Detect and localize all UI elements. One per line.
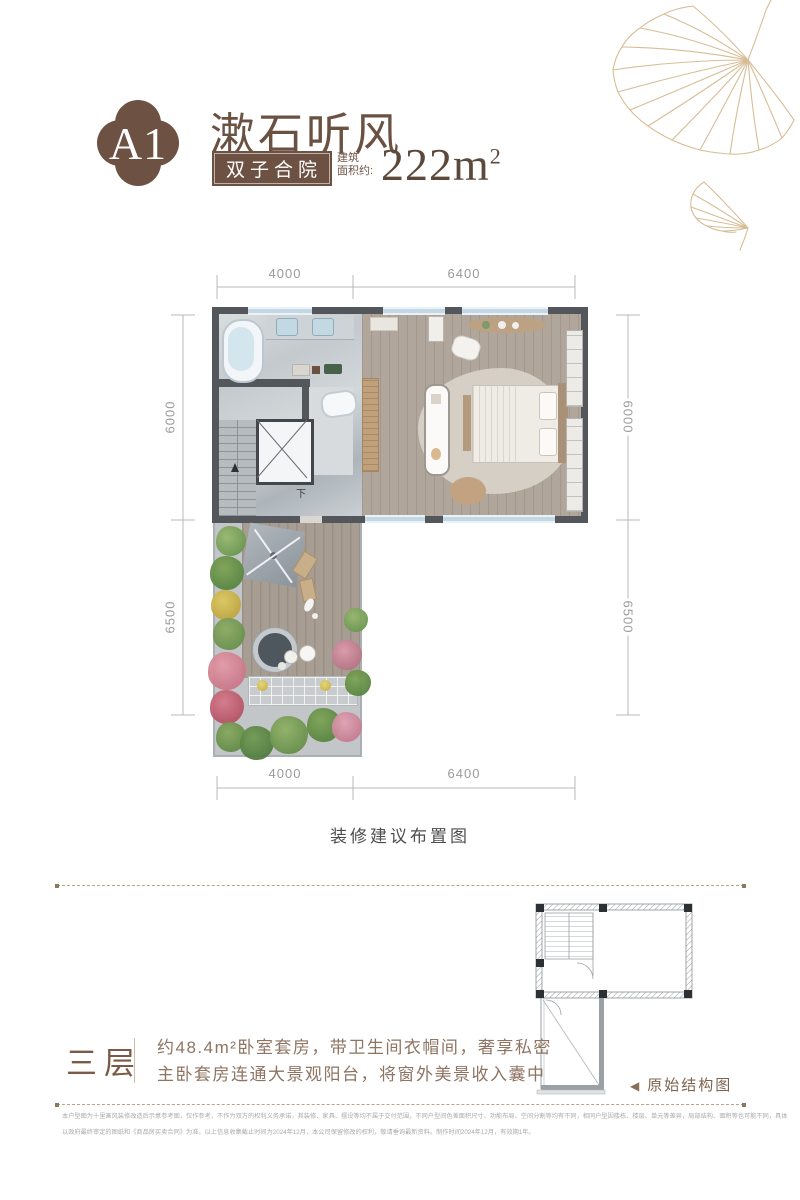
- bath-shelf: [292, 364, 310, 376]
- shrub: [240, 726, 274, 760]
- floor-description: 约48.4m²卧室套房，带卫生间衣帽间，奢享私密 主卧套房连通大景观阳台，将窗外…: [157, 1034, 552, 1088]
- dim-bottom-left: 4000: [267, 766, 304, 781]
- wardrobe: [566, 330, 583, 407]
- unit-badge-label: A1: [97, 100, 179, 186]
- console-table: [468, 317, 546, 333]
- brochure-page: A1 漱石听风 双子合院 建筑 面积约: 222m2 4000 6400 400…: [0, 0, 800, 1200]
- shrub-yellow: [211, 590, 241, 620]
- flower-yellow: [257, 680, 268, 691]
- original-structure-diagram: [533, 901, 705, 1097]
- shrub-pink: [332, 712, 362, 742]
- bed-end-bench: [463, 395, 471, 451]
- floorplan-upper-block: 下: [212, 307, 588, 523]
- shrub-pink: [208, 652, 246, 690]
- floor-label: 三层: [66, 1038, 142, 1083]
- shade-canopy: [241, 523, 306, 588]
- plant-tray: [324, 364, 342, 374]
- bed: [472, 385, 566, 463]
- bath-accessory: [312, 366, 320, 374]
- vanity-island: [424, 384, 450, 476]
- unit-badge: A1: [97, 100, 179, 186]
- wardrobe: [566, 418, 583, 512]
- dashed-divider-bottom: [57, 1104, 744, 1105]
- area-value: 222m2: [381, 138, 502, 191]
- door-mat: [370, 317, 398, 331]
- stair-down-label: 下: [296, 485, 306, 500]
- shrub: [270, 716, 308, 754]
- bathtub: [222, 319, 264, 383]
- dim-right-upper: 6000: [621, 399, 636, 436]
- window: [443, 515, 555, 523]
- disclaimer-line2: 以政府最终审定的图纸和《商品房买卖合同》为准。以上信息收集截止时间为2024年1…: [62, 1128, 535, 1137]
- dim-top-left: 4000: [267, 266, 304, 281]
- dashed-divider-top: [57, 885, 744, 886]
- pebble: [312, 613, 318, 619]
- left-arrow-icon: ◀: [630, 1079, 641, 1093]
- area-superscript: 2: [490, 144, 502, 169]
- disclaimer-line1: 本户型图为十里画风装修改造后示意参考图，仅作参考，不作为双方的权利义务承诺，其装…: [62, 1112, 787, 1121]
- structure-diagram-text: 原始结构图: [647, 1077, 732, 1094]
- double-vanity: [266, 315, 354, 340]
- window: [462, 307, 548, 315]
- dim-right-lower: 6500: [621, 599, 636, 636]
- dim-left-lower: 6500: [163, 599, 178, 636]
- side-cabinet: [428, 316, 444, 342]
- bench: [362, 378, 379, 472]
- terrace-door-opening: [300, 516, 322, 523]
- shrub: [210, 556, 244, 590]
- shrub-pink: [332, 640, 362, 670]
- stair-direction-arrow: [231, 463, 239, 472]
- flower-yellow: [320, 680, 331, 691]
- floor-description-line2: 主卧套房连通大景观阳台，将窗外美景收入囊中: [157, 1061, 552, 1088]
- shrub: [344, 608, 368, 632]
- pouf: [450, 477, 486, 505]
- shrub: [345, 670, 371, 696]
- plan-caption: 装修建议布置图: [212, 822, 588, 847]
- stool: [278, 662, 286, 670]
- roof-terrace: [213, 523, 362, 757]
- area-label: 建筑 面积约:: [337, 152, 373, 178]
- outdoor-chair: [299, 645, 316, 662]
- dim-top-right: 6400: [446, 266, 483, 281]
- dim-left-upper: 6000: [163, 399, 178, 436]
- shrub: [213, 618, 245, 650]
- structure-diagram-label: ◀原始结构图: [630, 1074, 732, 1095]
- floor-description-line1: 约48.4m²卧室套房，带卫生间衣帽间，奢享私密: [157, 1034, 552, 1061]
- dim-bottom-right: 6400: [446, 766, 483, 781]
- window: [383, 307, 445, 315]
- ginkgo-leaf-decoration: [596, 0, 800, 250]
- product-type-tag: 双子合院: [212, 151, 332, 186]
- shrub: [216, 526, 246, 556]
- vertical-divider: [134, 1038, 135, 1083]
- side-table: [284, 650, 298, 664]
- shrub-red: [210, 690, 244, 724]
- elevator-shaft: [256, 419, 314, 485]
- window: [248, 307, 312, 315]
- window: [365, 515, 425, 523]
